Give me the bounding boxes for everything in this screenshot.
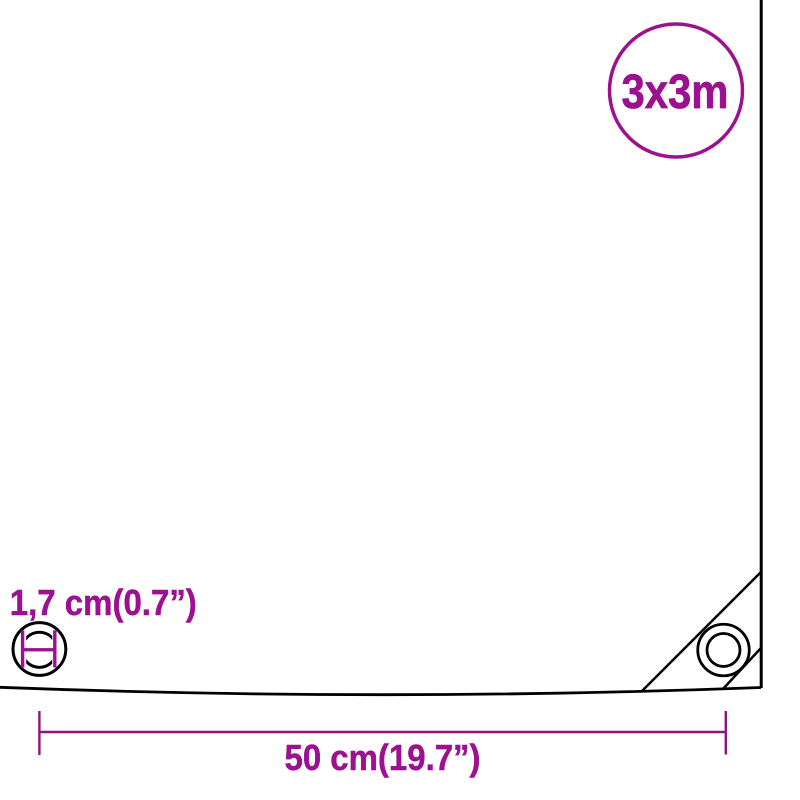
svg-text:50 cm(19.7”): 50 cm(19.7”) (285, 737, 481, 778)
svg-text:1,7 cm(0.7”): 1,7 cm(0.7”) (10, 582, 197, 623)
svg-text:3x3m: 3x3m (622, 66, 729, 119)
